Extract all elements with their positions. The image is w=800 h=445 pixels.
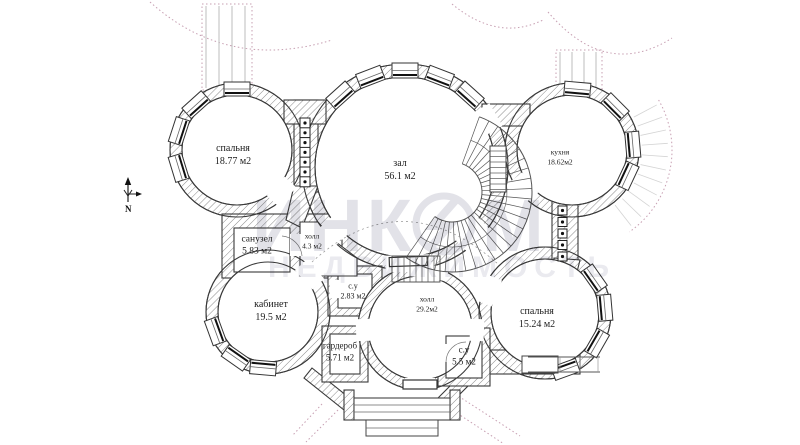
compass-north-label: N	[125, 204, 132, 214]
room-label-wardrobe: гардероб 5.71 м2	[323, 340, 357, 363]
room-label-office: кабинет 19.5 м2	[254, 298, 288, 324]
room-label-kitchen: кухня 18.62м2	[547, 147, 572, 167]
north-compass-icon: N	[124, 177, 142, 214]
room-label-wc-entry: с.у 5.5 м2	[452, 344, 476, 367]
floor-plan-page: ИНК М НЕДВИЖИМОСТЬ N спальня 18.77 м2 за…	[0, 0, 800, 445]
room-label-hall-main: зал 56.1 м2	[384, 157, 415, 183]
room-label-bathroom-1: санузел 5.83 м2	[241, 234, 272, 259]
watermark-subtitle: НЕДВИЖИМОСТЬ	[268, 251, 616, 284]
room-label-bedroom-tl: спальня 18.77 м2	[215, 142, 251, 168]
room-label-bedroom-br: спальня 15.24 м2	[519, 305, 555, 331]
room-label-hall-lower: холл 29.2м2	[416, 294, 438, 314]
room-label-hall-small: холл 4.3 м2	[302, 231, 322, 251]
room-label-wc-small: с.у 2.83 м2	[340, 282, 365, 303]
floor-plan-drawing: ИНК М НЕДВИЖИМОСТЬ N	[0, 0, 800, 445]
